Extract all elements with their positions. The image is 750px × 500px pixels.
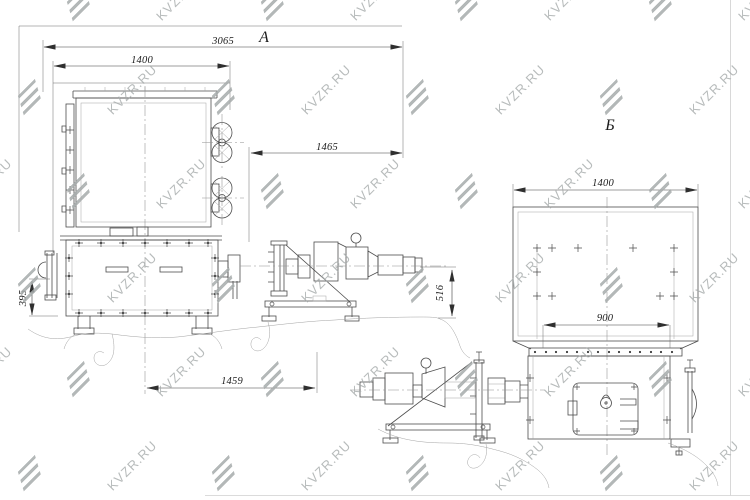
- front-view-a: [38, 227, 240, 349]
- door-handle: [601, 395, 612, 409]
- ground-line-b: [378, 429, 718, 488]
- technical-drawing: 3065 1400 1465 1459 395 516 А: [0, 0, 750, 500]
- right-flange-b: [671, 360, 697, 455]
- dim-overall-a: 3065: [211, 36, 234, 47]
- dim-shaft-a: 1465: [316, 142, 338, 153]
- view-b: 1400 900 Б: [350, 117, 718, 488]
- left-bracket: [38, 251, 57, 300]
- access-door: [568, 383, 638, 435]
- drawing-canvas: 3065 1400 1465 1459 395 516 А: [0, 0, 750, 500]
- dimensions-b: 1400 900: [513, 178, 698, 348]
- dim-base-b: 900: [597, 313, 614, 324]
- view-b-label: Б: [604, 117, 615, 134]
- drive-assembly-a: [233, 233, 448, 321]
- sheet-frame: [205, 0, 750, 496]
- fan-1: [202, 114, 244, 171]
- eye-bolt-a: [351, 233, 361, 247]
- dimensions-a: 3065 1400 1465 1459 395 516: [18, 36, 456, 393]
- dim-box-a: 1400: [131, 55, 153, 66]
- view-a: 3065 1400 1465 1459 395 516 А: [18, 26, 470, 394]
- ground-line-a: [28, 317, 470, 366]
- lower-body-b: [526, 356, 697, 455]
- dim-box-b: 1400: [592, 178, 614, 189]
- dim-base-a: 1459: [221, 376, 243, 387]
- dim-height-a: 395: [18, 290, 29, 307]
- dim-drive-a: 516: [435, 284, 446, 301]
- fan-2: [202, 176, 244, 226]
- drive-assembly-b: [350, 352, 545, 443]
- view-a-label: А: [258, 29, 269, 46]
